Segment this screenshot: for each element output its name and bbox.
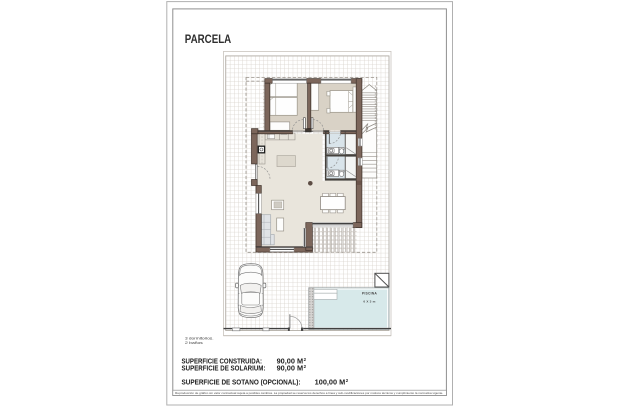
svg-text:6 X 3 m: 6 X 3 m [363,299,375,303]
svg-text:SUPERFICIE DE SOTANO (OPCIONAL: SUPERFICIE DE SOTANO (OPCIONAL): [182,377,301,386]
svg-text:PISCINA: PISCINA [362,291,378,295]
svg-text:Reproducción de gráfico sin va: Reproducción de gráfico sin valor contra… [175,391,443,395]
svg-text:SUPERFICIE DE SOLARIUM:: SUPERFICIE DE SOLARIUM: [182,364,266,373]
svg-text:90,00 M: 90,00 M [277,364,304,373]
svg-text:PARCELA: PARCELA [185,33,232,46]
svg-text:100,00 M: 100,00 M [315,377,346,386]
svg-text:2 baños: 2 baños [185,341,203,345]
